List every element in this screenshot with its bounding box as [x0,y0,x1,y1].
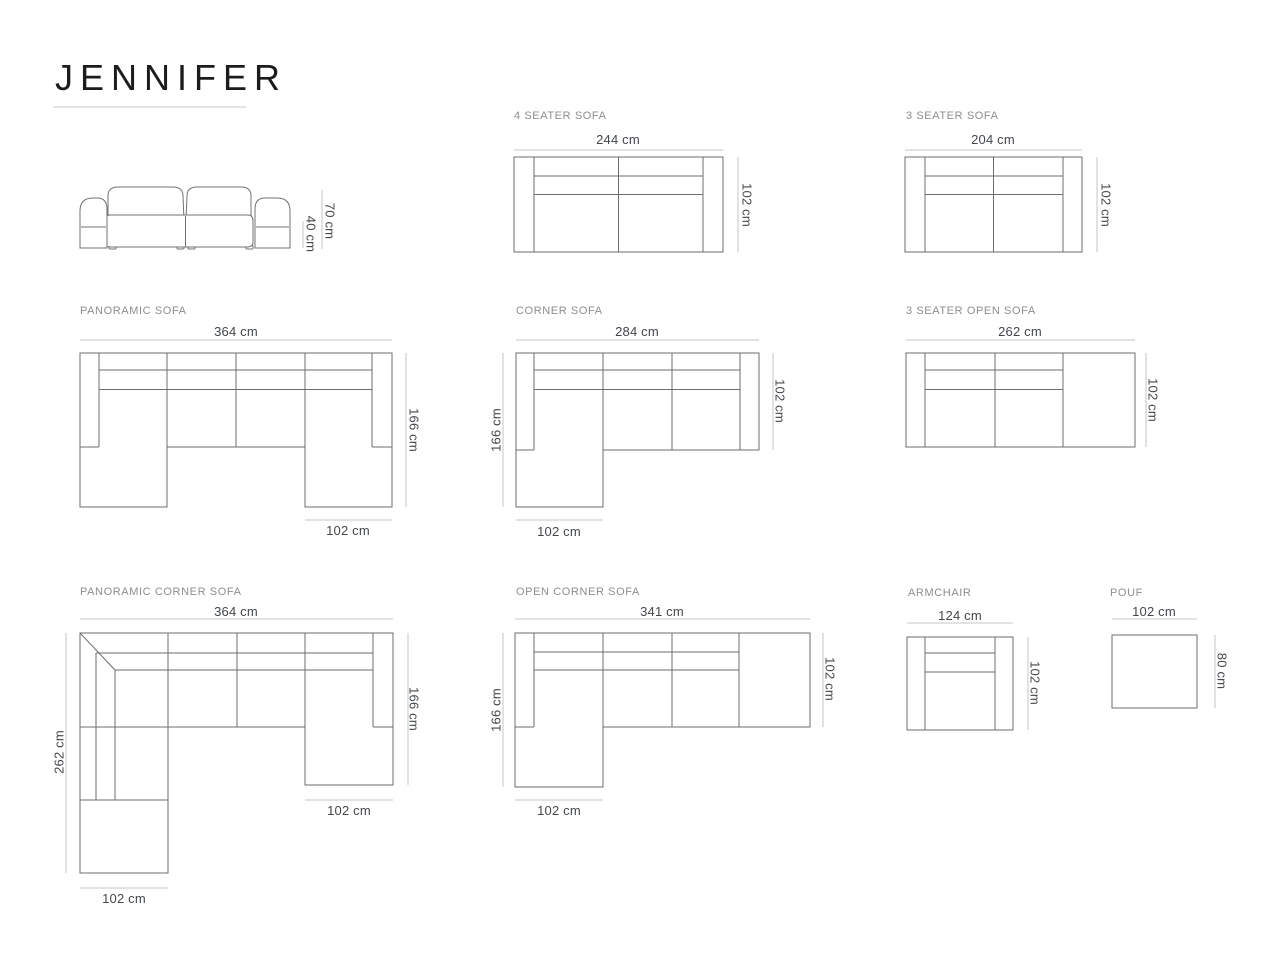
open-corner-chaise-dim: 102 cm [537,803,581,818]
label-armchair: ARMCHAIR [908,587,971,599]
panoramic-chaise-dim: 102 cm [326,523,370,538]
four-seater-width-dim: 244 cm [596,132,640,147]
label-panoramic-corner: PANORAMIC CORNER SOFA [80,586,242,598]
label-open-corner: OPEN CORNER SOFA [516,586,640,598]
label-panoramic: PANORAMIC SOFA [80,305,187,317]
open-three-seater-width-dim: 262 cm [998,324,1042,339]
open-three-seater-depth-dim: 102 cm [1146,378,1161,422]
hero-sofa-drawing [80,187,322,249]
pouf-depth-dim: 80 cm [1215,653,1230,689]
hero-seat-height-dim: 40 cm [304,216,319,252]
pouf-drawing [1112,619,1215,708]
hero-total-height-dim: 70 cm [323,203,338,239]
product-spec-sheet: JENNIFER [0,0,1280,960]
pouf-width-dim: 102 cm [1132,604,1176,619]
panoramic-corner-drawing [66,619,408,888]
open-corner-left-depth-dim: 166 cm [489,688,504,732]
open-corner-drawing [503,619,823,800]
panoramic-corner-width-dim: 364 cm [214,604,258,619]
armchair-drawing [907,623,1028,730]
label-pouf: POUF [1110,587,1143,599]
panoramic-depth-dim: 166 cm [407,408,422,452]
panoramic-corner-bottom-chaise-dim: 102 cm [102,891,146,906]
open-corner-right-depth-dim: 102 cm [823,657,838,701]
four-seater-depth-dim: 102 cm [740,183,755,227]
label-four-seater: 4 SEATER SOFA [514,110,607,122]
corner-chaise-dim: 102 cm [537,524,581,539]
corner-left-depth-dim: 166 cm [489,408,504,452]
three-seater-depth-dim: 102 cm [1099,183,1114,227]
corner-right-depth-dim: 102 cm [773,379,788,423]
panoramic-corner-right-depth-dim: 166 cm [407,687,422,731]
label-corner: CORNER SOFA [516,305,603,317]
label-three-seater: 3 SEATER SOFA [906,110,999,122]
panoramic-sofa-drawing [80,340,406,520]
armchair-width-dim: 124 cm [938,608,982,623]
three-seater-width-dim: 204 cm [971,132,1015,147]
panoramic-width-dim: 364 cm [214,324,258,339]
label-open-three-seater: 3 SEATER OPEN SOFA [906,305,1036,317]
panoramic-corner-left-depth-dim: 262 cm [52,730,67,774]
open-corner-width-dim: 341 cm [640,604,684,619]
open-three-seater-drawing [906,340,1146,447]
armchair-depth-dim: 102 cm [1028,661,1043,705]
corner-sofa-drawing [503,340,773,520]
panoramic-corner-right-chaise-dim: 102 cm [327,803,371,818]
technical-drawings [0,0,1280,960]
four-seater-drawing [514,150,738,252]
corner-width-dim: 284 cm [615,324,659,339]
three-seater-drawing [905,150,1097,252]
